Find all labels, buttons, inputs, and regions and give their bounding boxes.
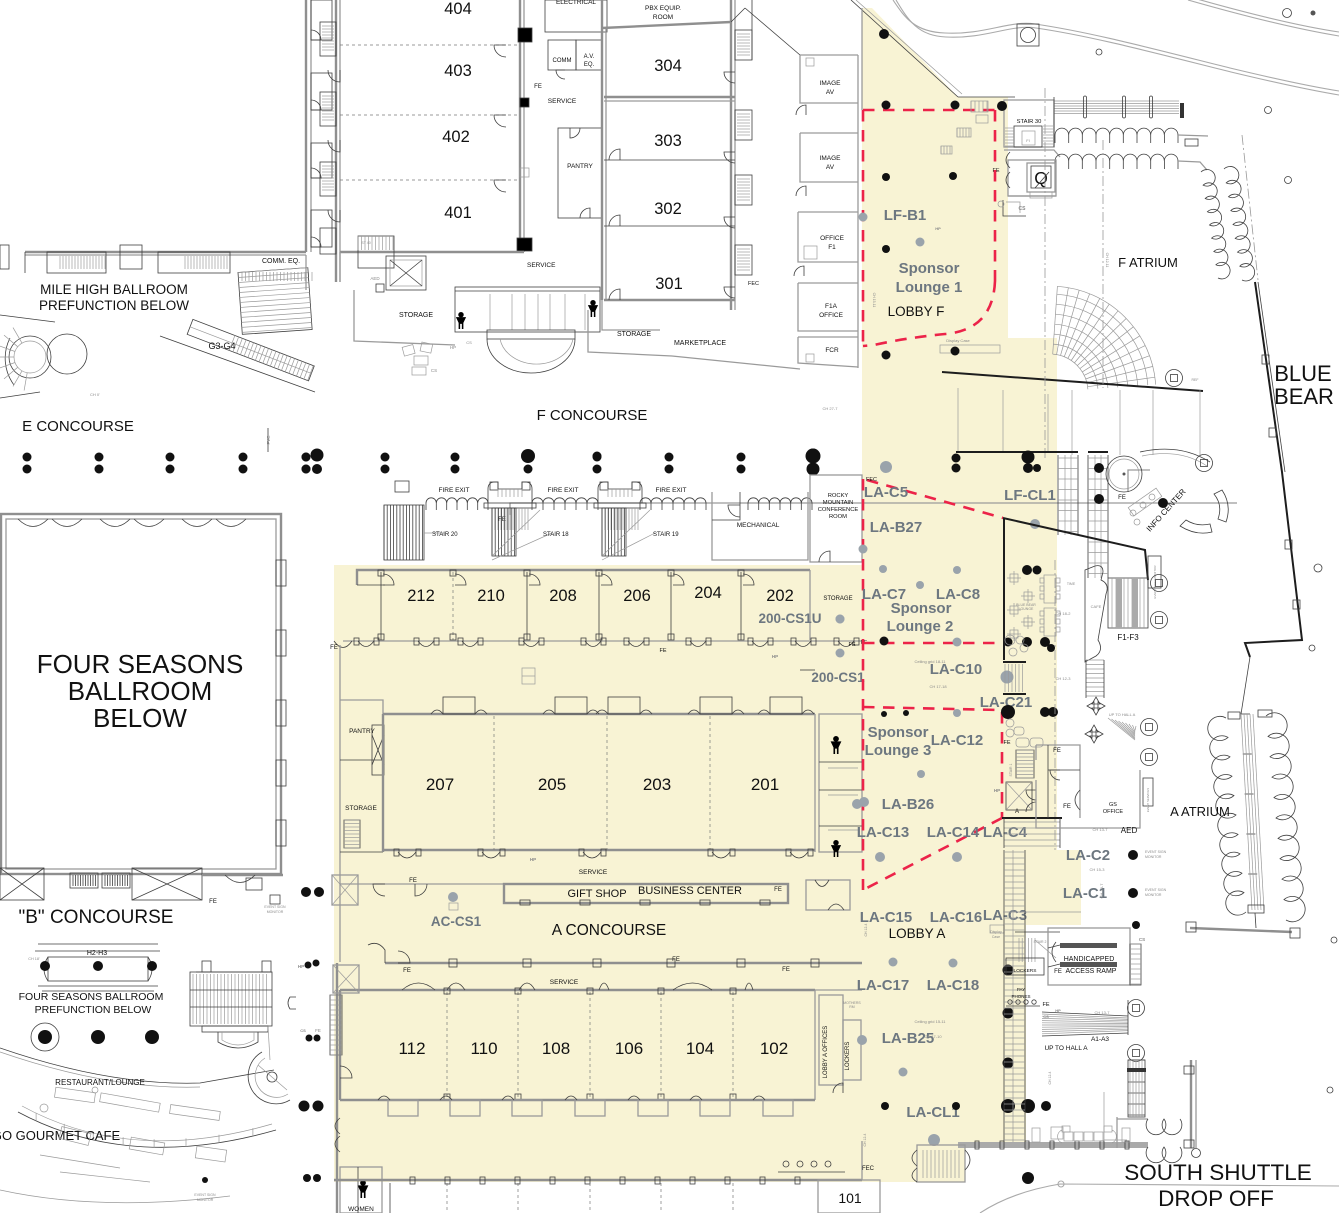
svg-text:CS: CS xyxy=(1019,206,1027,212)
svg-text:CH 27-7: CH 27-7 xyxy=(823,406,839,411)
svg-text:AED: AED xyxy=(1121,826,1138,835)
svg-text:STAIR 1: STAIR 1 xyxy=(1009,763,1013,776)
svg-text:ROCKY: ROCKY xyxy=(828,493,849,499)
svg-text:RM: RM xyxy=(849,1005,855,1009)
svg-text:PANTRY: PANTRY xyxy=(349,728,375,735)
svg-text:302: 302 xyxy=(654,200,682,218)
svg-text:SERVICE: SERVICE xyxy=(550,979,579,986)
svg-text:UP TO HALL A: UP TO HALL A xyxy=(1044,1045,1088,1052)
svg-text:SERVICE: SERVICE xyxy=(548,98,577,105)
svg-text:PHONES: PHONES xyxy=(1011,994,1030,999)
svg-text:ELECTRICAL: ELECTRICAL xyxy=(556,0,596,6)
svg-text:FOUR SEASONS BALLROOM: FOUR SEASONS BALLROOM xyxy=(19,991,164,1003)
svg-text:Lounge 3: Lounge 3 xyxy=(865,742,932,759)
svg-text:FEC: FEC xyxy=(748,281,759,287)
svg-text:Lounge 2: Lounge 2 xyxy=(887,618,954,635)
svg-text:LA-C16: LA-C16 xyxy=(930,909,983,926)
svg-text:ST 40: ST 40 xyxy=(361,241,370,245)
svg-text:FEC: FEC xyxy=(862,1166,875,1172)
svg-text:LA-C2: LA-C2 xyxy=(1066,847,1110,864)
svg-text:FVC: FVC xyxy=(266,435,271,445)
svg-text:BALLROOM: BALLROOM xyxy=(68,676,213,706)
svg-text:210: 210 xyxy=(477,587,505,605)
svg-text:HP: HP xyxy=(450,345,456,350)
svg-text:FE: FE xyxy=(1118,495,1126,501)
svg-text:CH 15-11: CH 15-11 xyxy=(872,293,876,308)
svg-text:EVENT SERVICES: EVENT SERVICES xyxy=(1146,788,1150,812)
svg-text:F1A: F1A xyxy=(825,303,838,310)
svg-text:ROOM: ROOM xyxy=(829,514,847,520)
svg-text:"B" CONCOURSE: "B" CONCOURSE xyxy=(19,907,174,928)
svg-text:LA-C18: LA-C18 xyxy=(927,977,980,994)
svg-text:CH 12-4: CH 12-4 xyxy=(863,1133,867,1146)
svg-text:FE: FE xyxy=(1054,969,1062,975)
svg-text:Case: Case xyxy=(992,935,1000,939)
svg-text:Sponsor: Sponsor xyxy=(899,260,960,277)
svg-text:401: 401 xyxy=(444,204,472,222)
svg-text:CH 12-4: CH 12-4 xyxy=(1048,1071,1052,1084)
svg-text:FE: FE xyxy=(330,645,338,651)
svg-text:LA-CL1: LA-CL1 xyxy=(906,1104,959,1121)
svg-text:F CONCOURSE: F CONCOURSE xyxy=(537,407,648,424)
svg-text:FE: FE xyxy=(848,642,855,648)
svg-text:FE: FE xyxy=(315,1028,321,1033)
svg-text:F1: F1 xyxy=(828,244,836,251)
svg-text:104: 104 xyxy=(686,1039,714,1058)
svg-text:205: 205 xyxy=(538,775,566,794)
svg-text:HP: HP xyxy=(1055,1008,1061,1013)
svg-text:OFFICE: OFFICE xyxy=(1103,809,1123,815)
svg-text:COMM: COMM xyxy=(553,58,572,64)
svg-text:FE: FE xyxy=(782,967,790,973)
svg-text:206: 206 xyxy=(623,587,651,605)
svg-text:FE: FE xyxy=(1003,740,1010,746)
svg-text:FE: FE xyxy=(1042,1002,1049,1008)
svg-text:MONITOR: MONITOR xyxy=(1145,893,1162,897)
svg-text:LOUNGE: LOUNGE xyxy=(1019,607,1034,611)
svg-text:FI: FI xyxy=(1026,138,1030,143)
svg-text:CS: CS xyxy=(431,368,437,373)
svg-text:F ATRIUM: F ATRIUM xyxy=(1118,255,1178,270)
svg-text:201: 201 xyxy=(751,775,779,794)
svg-text:LA-C5: LA-C5 xyxy=(864,484,908,501)
svg-text:LA-C17: LA-C17 xyxy=(857,977,910,994)
svg-text:MOUNTAIN: MOUNTAIN xyxy=(823,500,853,506)
svg-text:A: A xyxy=(1015,809,1019,815)
svg-text:LA-C14: LA-C14 xyxy=(927,824,980,841)
svg-text:A1-A3: A1-A3 xyxy=(1091,1036,1109,1043)
svg-text:BEAR: BEAR xyxy=(1274,384,1334,409)
svg-text:LOCKERS: LOCKERS xyxy=(845,1042,851,1071)
svg-text:CH 17-10: CH 17-10 xyxy=(924,1034,942,1039)
svg-text:Q: Q xyxy=(1034,168,1048,188)
svg-text:101: 101 xyxy=(838,1190,862,1206)
svg-text:CONFERENCE: CONFERENCE xyxy=(818,507,859,513)
svg-text:FOUR SEASONS: FOUR SEASONS xyxy=(37,649,244,679)
svg-text:110: 110 xyxy=(470,1039,497,1058)
svg-text:STORAGE: STORAGE xyxy=(399,312,433,319)
svg-text:404: 404 xyxy=(444,0,472,18)
svg-text:PANTRY: PANTRY xyxy=(567,163,593,170)
svg-text:STAIR 19: STAIR 19 xyxy=(653,532,679,538)
svg-text:301: 301 xyxy=(655,275,683,293)
svg-text:GIFT SHOP: GIFT SHOP xyxy=(567,888,626,900)
svg-text:FIRE EXIT: FIRE EXIT xyxy=(547,487,578,494)
svg-text:Sponsor: Sponsor xyxy=(891,600,952,617)
svg-text:CAFE: CAFE xyxy=(1091,604,1102,609)
svg-text:102: 102 xyxy=(760,1039,788,1058)
svg-text:Display Case: Display Case xyxy=(946,338,970,343)
svg-text:LOBBY F: LOBBY F xyxy=(888,304,945,319)
svg-text:MONITOR: MONITOR xyxy=(267,910,284,914)
svg-text:Display: Display xyxy=(990,930,1002,934)
svg-text:CH 12-11: CH 12-11 xyxy=(1105,253,1109,268)
svg-text:EVENT SIGN: EVENT SIGN xyxy=(1145,850,1167,854)
svg-text:200-CS1: 200-CS1 xyxy=(811,670,865,685)
svg-text:FE: FE xyxy=(672,957,680,963)
svg-text:F1-F3: F1-F3 xyxy=(1117,633,1139,642)
svg-text:A.V.: A.V. xyxy=(584,54,595,60)
svg-text:112: 112 xyxy=(398,1039,425,1058)
svg-text:LA-C3: LA-C3 xyxy=(983,907,1027,924)
svg-text:HP: HP xyxy=(994,788,1000,793)
svg-text:OFFICE: OFFICE xyxy=(820,235,844,242)
svg-text:COMM. EQ.: COMM. EQ. xyxy=(262,258,300,265)
svg-text:FEC: FEC xyxy=(866,477,877,483)
svg-text:FCR: FCR xyxy=(825,347,839,354)
svg-text:FE: FE xyxy=(1053,748,1061,754)
svg-text:303: 303 xyxy=(654,132,682,150)
svg-text:HP: HP xyxy=(772,654,778,659)
svg-text:Lounge 1: Lounge 1 xyxy=(896,279,963,296)
svg-text:Ceiling grid 18-11: Ceiling grid 18-11 xyxy=(914,659,946,664)
svg-text:FE: FE xyxy=(1063,804,1071,810)
svg-text:FE: FE xyxy=(409,878,417,884)
svg-text:LA-C4: LA-C4 xyxy=(983,824,1028,841)
svg-text:CH 0': CH 0' xyxy=(90,392,100,397)
svg-text:106: 106 xyxy=(615,1039,643,1058)
svg-text:MECHANICAL: MECHANICAL xyxy=(737,522,780,529)
svg-text:STAIR 18: STAIR 18 xyxy=(543,532,569,538)
svg-text:SERVICE: SERVICE xyxy=(579,869,608,876)
svg-text:GS: GS xyxy=(1109,802,1117,808)
svg-text:ACCESS RAMP: ACCESS RAMP xyxy=(1066,968,1117,975)
svg-text:LA-B27: LA-B27 xyxy=(870,519,923,536)
svg-text:207: 207 xyxy=(426,775,454,794)
svg-text:403: 403 xyxy=(444,62,472,80)
svg-text:CS: CS xyxy=(300,1028,306,1033)
svg-text:SOUTH SHUTTLE: SOUTH SHUTTLE xyxy=(1124,1160,1312,1185)
svg-text:UP TO HALL A: UP TO HALL A xyxy=(1109,712,1136,717)
svg-text:LOCKERS: LOCKERS xyxy=(1014,968,1037,974)
svg-text:LA-B26: LA-B26 xyxy=(882,796,935,813)
svg-text:LOBBY A: LOBBY A xyxy=(889,926,946,941)
svg-text:FIRE EXIT: FIRE EXIT xyxy=(438,487,469,494)
svg-text:MILE HIGH BALLROOM: MILE HIGH BALLROOM xyxy=(40,282,188,297)
svg-text:212: 212 xyxy=(407,587,435,605)
svg-text:BLUE: BLUE xyxy=(1274,361,1331,386)
svg-text:PREFUNCTION BELOW: PREFUNCTION BELOW xyxy=(35,1004,152,1016)
svg-text:FE: FE xyxy=(209,899,217,905)
svg-text:CH 12-4: CH 12-4 xyxy=(864,923,868,936)
svg-text:AED: AED xyxy=(370,276,380,281)
svg-text:AV: AV xyxy=(826,164,835,171)
svg-text:TIME: TIME xyxy=(1067,582,1076,586)
svg-text:PAY: PAY xyxy=(1017,987,1025,992)
svg-text:CH 17-18: CH 17-18 xyxy=(929,684,947,689)
svg-text:G3-G4: G3-G4 xyxy=(208,341,235,351)
svg-text:RESTAURANT/LOUNGE: RESTAURANT/LOUNGE xyxy=(55,1078,145,1087)
svg-text:GO GOURMET CAFE: GO GOURMET CAFE xyxy=(0,1128,120,1143)
svg-text:HANDICAPPED: HANDICAPPED xyxy=(1064,956,1115,963)
svg-text:108: 108 xyxy=(542,1039,570,1058)
svg-text:HP: HP xyxy=(298,964,304,969)
svg-text:A ATRIUM: A ATRIUM xyxy=(1170,804,1230,819)
svg-text:WOMEN: WOMEN xyxy=(348,1206,374,1213)
svg-text:AV: AV xyxy=(826,89,835,96)
svg-text:CH 12-3: CH 12-3 xyxy=(1056,676,1072,681)
svg-text:208: 208 xyxy=(549,587,577,605)
svg-text:MARKETPLACE: MARKETPLACE xyxy=(674,340,726,347)
svg-text:MONITOR: MONITOR xyxy=(197,1198,214,1202)
svg-text:FE: FE xyxy=(534,84,542,90)
svg-text:LF-CL1: LF-CL1 xyxy=(1004,487,1056,504)
svg-text:ROOM: ROOM xyxy=(653,14,673,21)
svg-text:LF-B1: LF-B1 xyxy=(884,207,927,224)
svg-text:Sponsor: Sponsor xyxy=(868,724,929,741)
svg-text:MONITOR: MONITOR xyxy=(1145,855,1162,859)
svg-text:STORAGE: STORAGE xyxy=(345,805,377,812)
svg-text:OFFICE: OFFICE xyxy=(819,312,843,319)
svg-text:A CONCOURSE: A CONCOURSE xyxy=(552,922,667,939)
svg-text:IMAGE: IMAGE xyxy=(820,80,842,87)
svg-text:CS: CS xyxy=(1043,1014,1049,1019)
svg-text:203: 203 xyxy=(643,775,671,794)
svg-text:LA-C13: LA-C13 xyxy=(857,824,910,841)
svg-text:FE: FE xyxy=(659,648,666,654)
svg-text:LA-C12: LA-C12 xyxy=(931,732,984,749)
svg-text:IMAGE: IMAGE xyxy=(820,155,842,162)
svg-text:Ceiling grid 15-11: Ceiling grid 15-11 xyxy=(914,1019,946,1024)
svg-text:HP: HP xyxy=(935,226,941,231)
svg-text:BELOW: BELOW xyxy=(93,703,187,733)
svg-text:H2-H3: H2-H3 xyxy=(87,950,107,957)
svg-text:EQ.: EQ. xyxy=(584,62,595,68)
svg-text:204: 204 xyxy=(694,584,722,602)
svg-text:LOBBY A OFFICES: LOBBY A OFFICES xyxy=(823,1026,829,1079)
svg-text:CS: CS xyxy=(466,340,472,345)
svg-text:EVENT SIGN: EVENT SIGN xyxy=(264,905,286,909)
svg-text:FIRE EXIT: FIRE EXIT xyxy=(655,487,686,494)
svg-text:AC-CS1: AC-CS1 xyxy=(431,914,482,929)
svg-text:304: 304 xyxy=(654,57,682,75)
svg-text:STORAGE: STORAGE xyxy=(823,596,852,602)
svg-text:200-CS1U: 200-CS1U xyxy=(758,611,821,626)
svg-text:PREFUNCTION BELOW: PREFUNCTION BELOW xyxy=(39,298,189,313)
svg-text:402: 402 xyxy=(442,128,470,146)
svg-text:DROP OFF: DROP OFF xyxy=(1158,1186,1274,1211)
svg-text:CH 15-3: CH 15-3 xyxy=(1090,867,1106,872)
svg-text:FE: FE xyxy=(403,968,411,974)
svg-text:EVENT SIGN MONITOR: EVENT SIGN MONITOR xyxy=(1153,565,1157,599)
svg-text:CH 18-2: CH 18-2 xyxy=(1056,611,1072,616)
svg-text:REF: REF xyxy=(1192,378,1199,382)
svg-text:EVENT SIGN: EVENT SIGN xyxy=(194,1193,216,1197)
svg-text:SERVICE: SERVICE xyxy=(527,262,556,269)
svg-text:LA-C15: LA-C15 xyxy=(860,909,913,926)
svg-text:CS: CS xyxy=(1139,937,1145,942)
svg-text:EVENT SIGN: EVENT SIGN xyxy=(1145,888,1167,892)
svg-text:HP: HP xyxy=(530,857,536,862)
svg-text:202: 202 xyxy=(766,587,794,605)
svg-text:STAIR 30: STAIR 30 xyxy=(1017,119,1042,125)
svg-text:CH 13-7: CH 13-7 xyxy=(1099,883,1104,899)
svg-text:CH 18': CH 18' xyxy=(28,957,40,961)
svg-text:STORAGE: STORAGE xyxy=(617,331,651,338)
svg-text:PBX EQUIP.: PBX EQUIP. xyxy=(645,5,681,12)
svg-text:E CONCOURSE: E CONCOURSE xyxy=(22,418,134,435)
svg-text:FE: FE xyxy=(774,887,782,893)
svg-text:BUSINESS CENTER: BUSINESS CENTER xyxy=(638,885,742,897)
